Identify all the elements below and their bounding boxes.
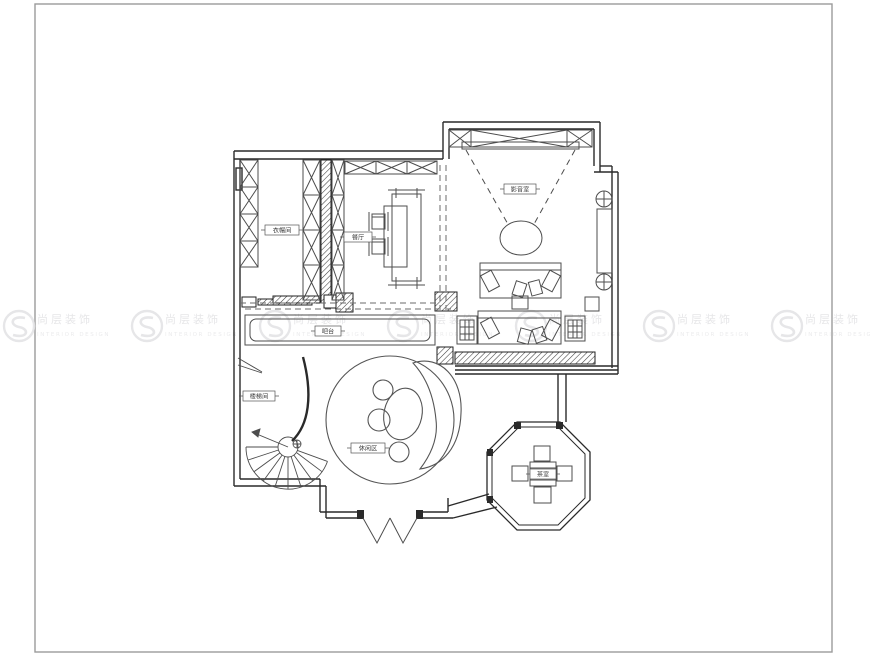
projector-table bbox=[500, 221, 542, 255]
spiral-staircase bbox=[238, 357, 328, 489]
svg-text:茶室: 茶室 bbox=[537, 471, 549, 479]
label-dining-room: 餐厅 bbox=[340, 232, 376, 242]
floor-lamp-table bbox=[585, 297, 599, 311]
svg-text:餐厅: 餐厅 bbox=[352, 234, 364, 242]
stair-curved-wall bbox=[292, 357, 308, 441]
dining-room-furniture bbox=[369, 188, 425, 289]
floor-plan-drawing: 尚层装饰 INTERIOR DESIGN bbox=[0, 0, 870, 653]
label-tea-room: 茶室 bbox=[526, 469, 560, 479]
svg-text:吧台: 吧台 bbox=[322, 328, 334, 336]
label-media-room: 影音室 bbox=[500, 184, 540, 194]
sofa-1 bbox=[480, 263, 561, 309]
svg-text:楼梯间: 楼梯间 bbox=[250, 393, 269, 401]
entry-door bbox=[357, 510, 423, 543]
floor-plan-canvas: 尚层装饰 INTERIOR DESIGN bbox=[0, 0, 870, 653]
label-lounge-feature: 休闲区 bbox=[347, 443, 389, 453]
wardrobe-cabinets bbox=[240, 130, 592, 300]
dining-chair bbox=[369, 212, 388, 231]
speaker-symbol bbox=[596, 191, 612, 290]
svg-text:衣帽间: 衣帽间 bbox=[273, 227, 292, 235]
svg-text:影音室: 影音室 bbox=[511, 186, 530, 194]
svg-text:休闲区: 休闲区 bbox=[359, 445, 378, 453]
page-frame bbox=[35, 4, 832, 652]
label-bar-counter: 吧台 bbox=[311, 326, 345, 336]
plant-table-left bbox=[457, 316, 477, 344]
label-staircase: 楼梯间 bbox=[239, 391, 279, 401]
window-seat bbox=[597, 209, 612, 273]
lounge-feature bbox=[326, 356, 461, 484]
watermark-row bbox=[4, 311, 870, 341]
stair-direction-arrow bbox=[252, 429, 260, 437]
label-cloakroom: 衣帽间 bbox=[261, 225, 303, 235]
